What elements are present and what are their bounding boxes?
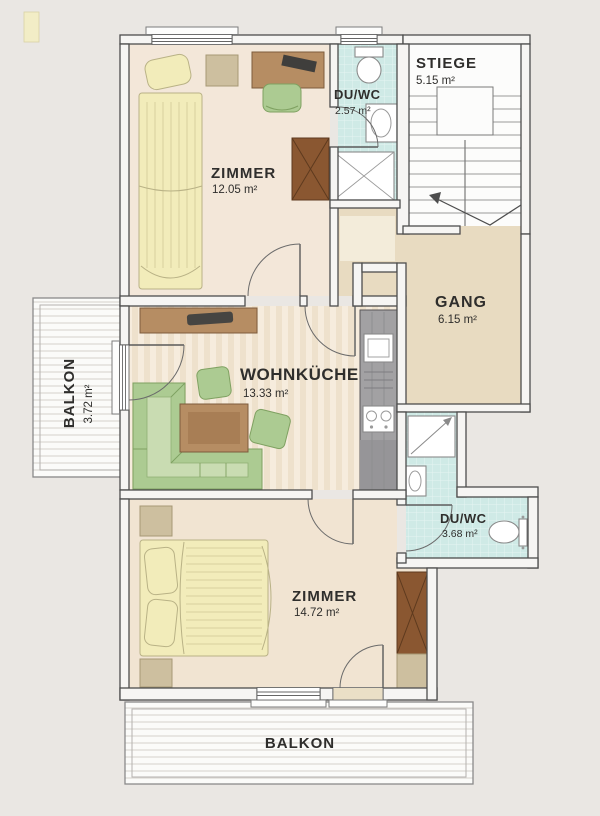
- wall: [353, 263, 362, 306]
- wall: [330, 147, 338, 306]
- wall: [528, 497, 538, 568]
- floor-plan-svg: STIEGE 5.15 m² DU/WC 2.57 m² ZIMMER 12.0…: [0, 0, 600, 816]
- entry-opening: [460, 226, 521, 234]
- room-label-balkon-left: BALKON: [61, 358, 78, 428]
- room-label-duwc-top: DU/WC: [334, 87, 381, 102]
- room-label-stiege: STIEGE: [416, 55, 477, 72]
- room-label-wohnkueche: WOHNKÜCHE: [240, 365, 359, 384]
- stair-landing: [437, 87, 493, 135]
- chair-1: [196, 366, 232, 400]
- room-area-gang: 6.15 m²: [438, 314, 477, 326]
- legend-scrap: [24, 12, 39, 42]
- floor-plan-page: STIEGE 5.15 m² DU/WC 2.57 m² ZIMMER 12.0…: [0, 0, 600, 816]
- wall: [457, 487, 538, 497]
- wall: [353, 490, 406, 499]
- room-label-duwc-bottom: DU/WC: [440, 511, 487, 526]
- room-area-duwc-top: 2.57 m²: [335, 105, 371, 117]
- room-area-stiege: 5.15 m²: [416, 75, 455, 87]
- room-label-gang: GANG: [435, 294, 487, 311]
- toilet-dot-1: [522, 516, 525, 519]
- wall: [397, 404, 530, 412]
- room-area-zimmer-top: 12.05 m²: [212, 184, 258, 196]
- wall: [300, 296, 307, 306]
- wall: [120, 499, 129, 700]
- wall: [120, 306, 129, 345]
- window-bath: [341, 35, 377, 45]
- kitchen-counter: [360, 310, 397, 492]
- knob-2: [384, 425, 387, 428]
- wall: [403, 35, 530, 44]
- window-sill-bottom: [251, 700, 326, 707]
- wall: [403, 226, 460, 234]
- wall: [521, 234, 530, 412]
- pillow-1: [144, 547, 179, 596]
- wall: [457, 412, 466, 497]
- room-area-zimmer-bottom: 14.72 m²: [294, 607, 340, 619]
- pillow-2: [144, 599, 179, 648]
- wall: [120, 410, 129, 490]
- toilet-bottom: [489, 521, 519, 543]
- wall: [120, 688, 257, 700]
- window-top-room: [152, 35, 232, 45]
- toilet-tank-bottom: [519, 519, 527, 546]
- wall: [330, 200, 400, 208]
- dining-table-inner: [188, 412, 240, 444]
- wall: [120, 490, 312, 499]
- nightstand-1: [140, 506, 172, 536]
- corridor-passage: [397, 234, 406, 263]
- kitchen-cabinet: [360, 440, 397, 492]
- room-area-duwc-bottom: 3.68 m²: [442, 528, 478, 540]
- room-area-balkon-left: 3.72 m²: [83, 384, 95, 423]
- wardrobe-base: [397, 654, 428, 688]
- room-label-balkon-bottom: BALKON: [265, 735, 335, 752]
- window-sill-top-room: [146, 27, 238, 35]
- wall: [120, 44, 129, 306]
- room-label-zimmer-bottom: ZIMMER: [292, 588, 357, 605]
- wall: [521, 44, 530, 234]
- entry-mat: [340, 216, 395, 261]
- desk-chair: [263, 84, 301, 112]
- window-bottom-room: [257, 688, 320, 701]
- wall: [120, 35, 152, 44]
- window-sill-bath: [336, 27, 382, 35]
- wall: [362, 263, 397, 272]
- wall: [397, 553, 406, 563]
- balcony-door-frame: [120, 345, 130, 410]
- wall: [397, 558, 538, 568]
- wall: [427, 568, 437, 700]
- knob-1: [370, 425, 373, 428]
- room-label-zimmer-top: ZIMMER: [211, 165, 276, 182]
- wall: [377, 35, 403, 44]
- toilet-top: [357, 57, 381, 83]
- toilet-tank-top: [355, 47, 383, 57]
- rug: [206, 55, 238, 86]
- door-sill-bottom: [329, 700, 387, 707]
- wall: [397, 263, 406, 412]
- wall: [232, 35, 341, 44]
- wall: [320, 688, 333, 700]
- balcony-door-threshold: [333, 688, 383, 701]
- window-sill-balcony-door: [112, 341, 120, 414]
- wall: [120, 296, 245, 306]
- room-area-wohnkueche: 13.33 m²: [243, 388, 289, 400]
- nightstand-2: [140, 659, 172, 687]
- toilet-dot-2: [522, 547, 525, 550]
